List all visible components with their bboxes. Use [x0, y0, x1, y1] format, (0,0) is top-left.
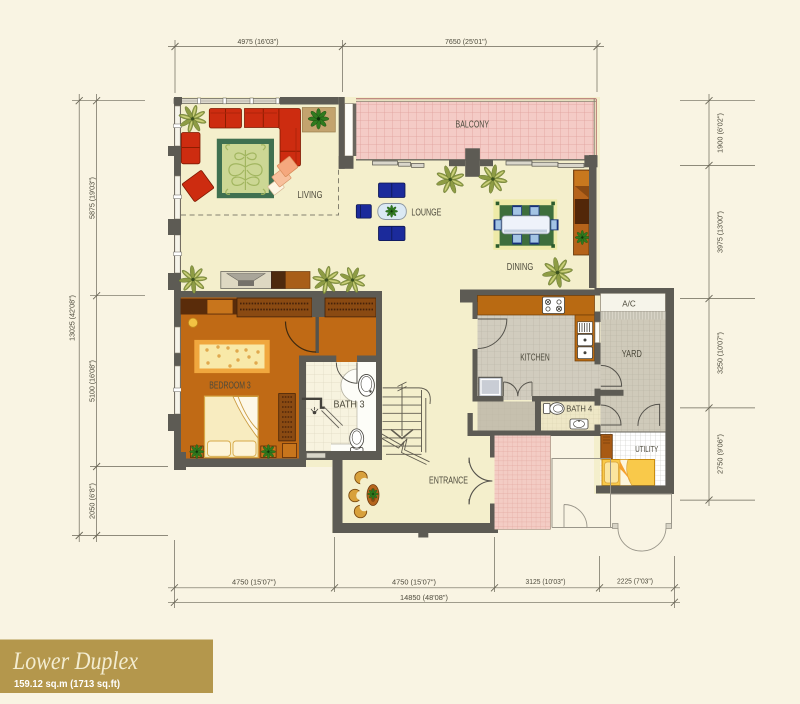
svg-text:BEDROOM 3: BEDROOM 3	[209, 381, 251, 392]
svg-text:LOUNGE: LOUNGE	[411, 208, 441, 219]
svg-text:14850 (48'08"): 14850 (48'08")	[400, 593, 448, 602]
svg-text:5100 (16'08"): 5100 (16'08")	[88, 360, 97, 402]
svg-text:159.12 sq.m (1713 sq.ft): 159.12 sq.m (1713 sq.ft)	[14, 679, 120, 690]
svg-text:ENTRANCE: ENTRANCE	[429, 476, 468, 487]
svg-text:2750 (9'06"): 2750 (9'06")	[716, 434, 725, 474]
svg-text:5875 (19'03"): 5875 (19'03")	[88, 177, 97, 219]
svg-text:DINING: DINING	[507, 262, 534, 273]
svg-text:13025 (42'08"): 13025 (42'08")	[68, 295, 77, 341]
svg-text:1900 (6'02"): 1900 (6'02")	[716, 113, 725, 153]
svg-text:7650 (25'01"): 7650 (25'01")	[445, 37, 487, 46]
svg-text:Lower Duplex: Lower Duplex	[12, 648, 138, 675]
svg-text:UTILITY: UTILITY	[635, 444, 658, 454]
svg-text:BALCONY: BALCONY	[456, 119, 490, 130]
svg-text:3975 (13'00"): 3975 (13'00")	[716, 211, 725, 253]
svg-text:3125 (10'03"): 3125 (10'03")	[526, 577, 566, 586]
svg-text:2225 (7'03"): 2225 (7'03")	[617, 577, 653, 586]
svg-text:4750 (15'07"): 4750 (15'07")	[232, 578, 276, 587]
svg-text:BATH 3: BATH 3	[334, 400, 365, 411]
svg-text:2050 (6'8"): 2050 (6'8")	[88, 483, 97, 519]
svg-text:3250 (10'07"): 3250 (10'07")	[716, 332, 725, 374]
svg-text:4975 (16'03"): 4975 (16'03")	[238, 37, 279, 46]
svg-text:KITCHEN: KITCHEN	[520, 353, 550, 364]
svg-text:YARD: YARD	[622, 349, 642, 360]
svg-text:A/C: A/C	[622, 299, 636, 309]
svg-text:LIVING: LIVING	[298, 190, 323, 201]
svg-text:BATH 4: BATH 4	[566, 404, 592, 414]
svg-text:4750 (15'07"): 4750 (15'07")	[392, 578, 436, 587]
